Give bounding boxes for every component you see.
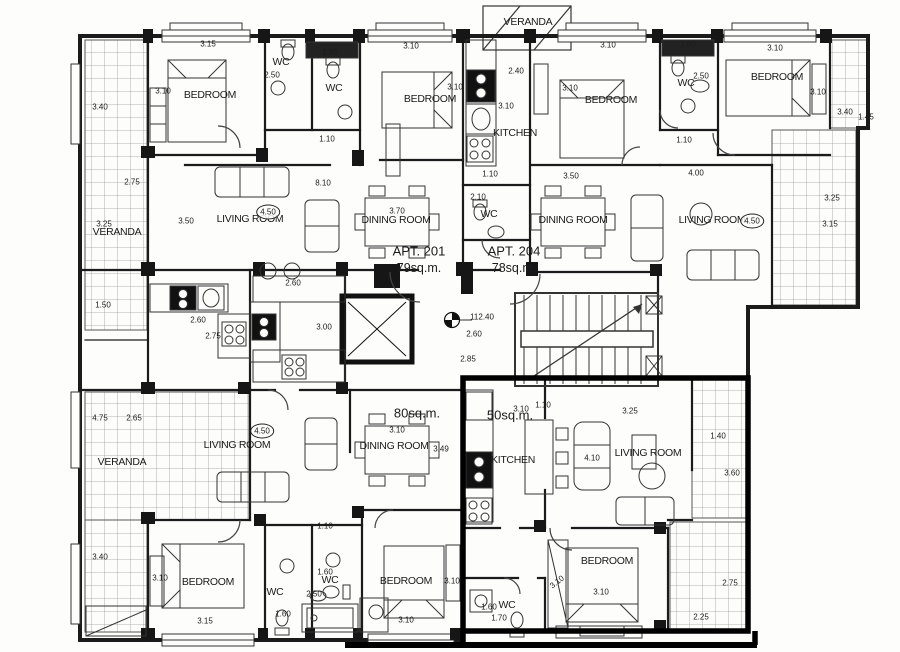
veranda-50sqm-lower [670,522,746,630]
level-marker [445,313,473,328]
dining-set-apt204 [531,186,615,258]
bed-top-left [150,60,226,142]
dining-set-apt201 [355,186,439,258]
veranda-left-top [85,40,147,330]
staircase [515,293,658,386]
elevator-shaft [342,296,412,362]
bed-bottom-center [360,545,460,632]
veranda-top-right-corner [830,40,868,128]
kitchen-80sqm [250,263,345,382]
bed-top-center-right [534,64,624,158]
veranda-left-bottom [85,520,147,632]
veranda-50sqm-upper [692,380,746,518]
floor-plan-drawing [0,0,900,652]
veranda-right [772,130,856,305]
bed-50sqm [548,540,638,636]
floor-plan: VERANDABEDROOMWCWCBEDROOMKITCHENWCBEDROO… [0,0,900,652]
veranda-left-mid [85,392,249,520]
bed-top-right [726,60,826,116]
kitchen-apt201 [150,284,250,358]
bed-bottom-left [150,544,244,608]
kitchen-50sqm [465,390,493,524]
sofa-50sqm [525,420,674,525]
dining-set-80sqm [355,414,439,486]
kitchen-apt204-column [466,40,496,166]
sofa-apt201 [215,167,339,252]
